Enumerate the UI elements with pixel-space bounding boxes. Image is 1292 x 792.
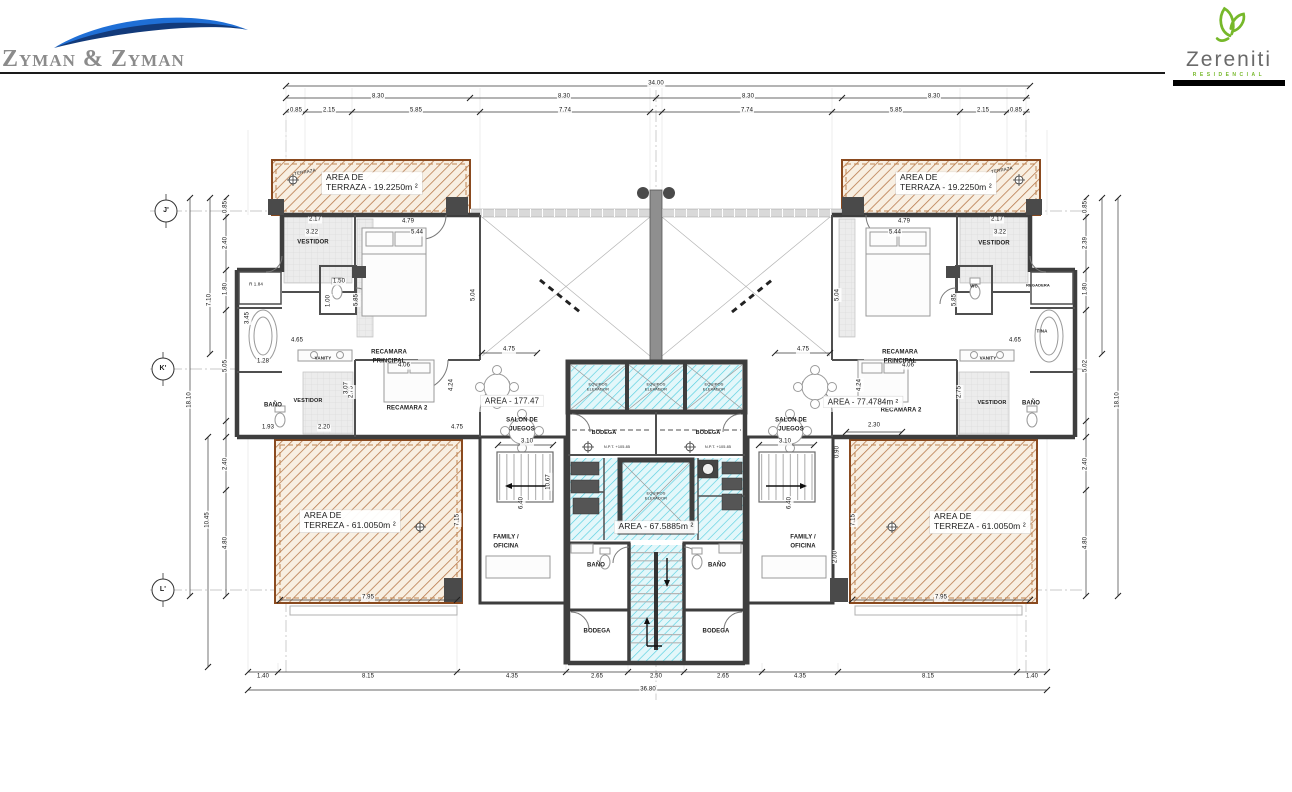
- grid-bubbles: [152, 194, 177, 607]
- drawing-sheet: Zyman & Zyman Zereniti RESIDENCIAL: [0, 0, 1292, 792]
- floor-plan-svg: [0, 0, 1292, 792]
